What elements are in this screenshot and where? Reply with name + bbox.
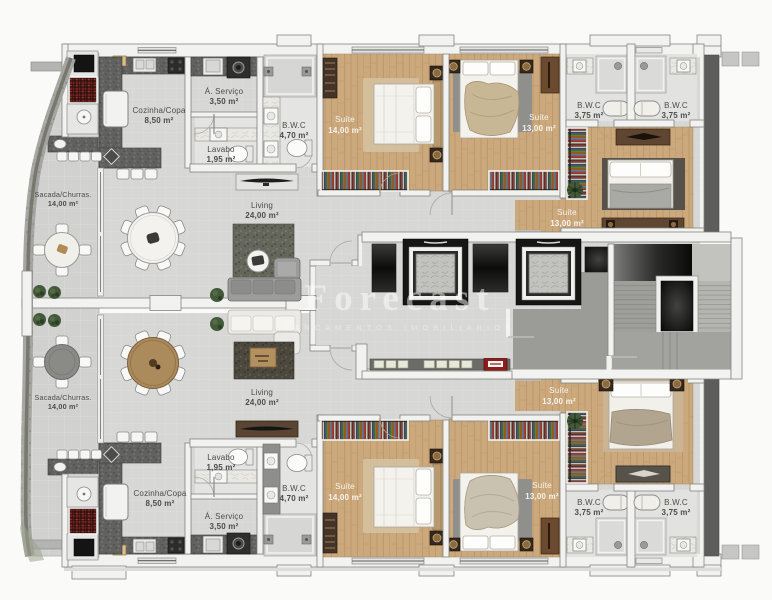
svg-text:Suíte: Suíte — [549, 386, 569, 395]
svg-text:Cozinha/Copa: Cozinha/Copa — [133, 489, 186, 498]
svg-text:B.W.C: B.W.C — [577, 101, 601, 110]
svg-text:B.W.C: B.W.C — [664, 101, 688, 110]
svg-text:3,50 m²: 3,50 m² — [210, 522, 239, 531]
svg-text:Sacada/Churras.: Sacada/Churras. — [35, 190, 92, 199]
svg-text:Sacada/Churras.: Sacada/Churras. — [35, 393, 92, 402]
svg-text:8,50 m²: 8,50 m² — [145, 116, 174, 125]
svg-text:24,00 m²: 24,00 m² — [245, 398, 279, 407]
svg-text:Forecast: Forecast — [305, 278, 496, 319]
svg-text:3,75 m²: 3,75 m² — [575, 508, 604, 517]
svg-text:B.W.C: B.W.C — [282, 121, 306, 130]
svg-text:Suíte: Suíte — [335, 482, 355, 491]
svg-text:Á. Serviço: Á. Serviço — [205, 87, 244, 96]
svg-text:B.W.C: B.W.C — [282, 484, 306, 493]
svg-text:Suíte: Suíte — [532, 481, 552, 490]
svg-text:Lavabo: Lavabo — [207, 453, 235, 462]
svg-text:13,00 m²: 13,00 m² — [525, 492, 559, 501]
svg-text:4,70 m²: 4,70 m² — [280, 131, 309, 140]
svg-text:13,00 m²: 13,00 m² — [542, 397, 576, 406]
svg-text:13,00 m²: 13,00 m² — [522, 124, 556, 133]
svg-text:Suíte: Suíte — [529, 113, 549, 122]
svg-text:Cozinha/Copa: Cozinha/Copa — [132, 106, 185, 115]
svg-text:Lavabo: Lavabo — [207, 145, 235, 154]
svg-text:1,95 m²: 1,95 m² — [207, 463, 236, 472]
svg-text:Á. Serviço: Á. Serviço — [205, 512, 244, 521]
svg-text:14,00 m²: 14,00 m² — [48, 402, 79, 411]
svg-text:B.W.C: B.W.C — [664, 498, 688, 507]
svg-text:3,75 m²: 3,75 m² — [662, 111, 691, 120]
svg-text:8,50 m²: 8,50 m² — [146, 499, 175, 508]
svg-text:Suíte: Suíte — [335, 115, 355, 124]
svg-text:LANCAMENTOS IMOBILIARIOS: LANCAMENTOS IMOBILIARIOS — [285, 323, 515, 332]
svg-text:1,95 m²: 1,95 m² — [207, 155, 236, 164]
svg-text:B.W.C: B.W.C — [577, 498, 601, 507]
svg-text:Living: Living — [251, 201, 273, 210]
svg-text:3,75 m²: 3,75 m² — [662, 508, 691, 517]
svg-text:14,00 m²: 14,00 m² — [328, 493, 362, 502]
svg-text:3,50 m²: 3,50 m² — [210, 97, 239, 106]
svg-text:24,00 m²: 24,00 m² — [245, 211, 279, 220]
svg-text:13,00 m²: 13,00 m² — [550, 219, 584, 228]
svg-text:3,75 m²: 3,75 m² — [575, 111, 604, 120]
svg-text:14,00 m²: 14,00 m² — [328, 126, 362, 135]
svg-text:Suíte: Suíte — [557, 208, 577, 217]
svg-text:14,00 m²: 14,00 m² — [48, 199, 79, 208]
svg-text:4,70 m²: 4,70 m² — [280, 494, 309, 503]
svg-text:Living: Living — [251, 388, 273, 397]
